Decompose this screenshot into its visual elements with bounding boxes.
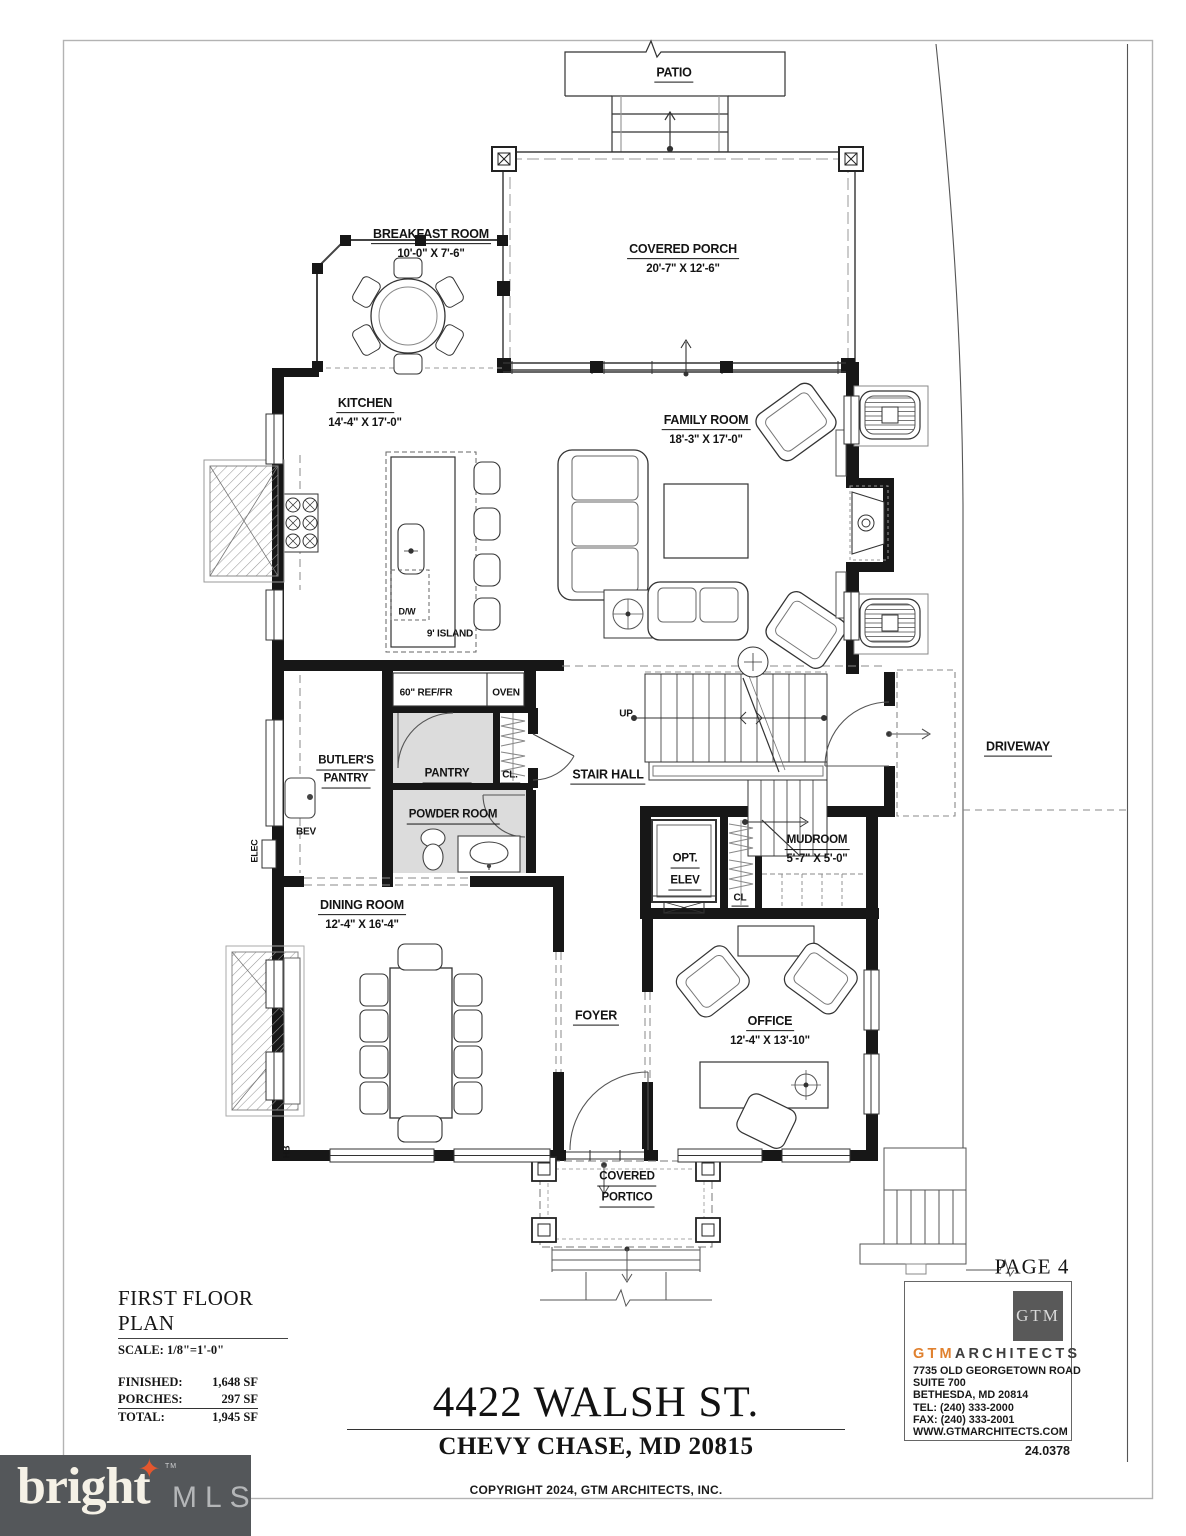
powder-room-label: POWDER ROOM	[407, 804, 500, 825]
stair-hall-label: STAIR HALL	[570, 765, 645, 786]
mls-label: MLS	[172, 1481, 258, 1515]
title-block: FIRST FLOOR PLAN SCALE: 1/8"=1'-0" FINIS…	[118, 1286, 288, 1426]
ref-label: 60" REF/FR	[400, 682, 453, 703]
portico-label2: PORTICO	[600, 1187, 655, 1208]
breakfast-room-label: BREAKFAST ROOM10'-0" X 7'-6"	[371, 224, 491, 262]
architect-block: GTM GTMARCHITECTS 7735 OLD GEORGETOWN RO…	[904, 1281, 1072, 1441]
plan-scale: SCALE: 1/8"=1'-0"	[118, 1343, 288, 1358]
star-icon: ✦	[138, 1454, 161, 1485]
areaway-hatch	[204, 460, 284, 582]
covered-porch-label: COVERED PORCH20'-7" X 12'-6"	[627, 239, 739, 277]
opt-elev-label: OPT.	[671, 848, 700, 869]
floor-plan-sheet: PATIO BREAKFAST ROOM10'-0" X 7'-6" COVER…	[0, 0, 1186, 1536]
toilet-icon	[421, 829, 445, 870]
oven-label: OVEN	[492, 682, 520, 703]
dining-room-label: DINING ROOM12'-4" X 16'-4"	[318, 895, 406, 933]
hb-label: HB	[276, 1146, 297, 1159]
plan-title: FIRST FLOOR PLAN	[118, 1286, 288, 1339]
project-number: 24.0378	[904, 1444, 1070, 1458]
side-steps	[860, 1148, 1014, 1276]
opt-elev-label2: ELEV	[668, 870, 701, 891]
vanity-sink-icon	[458, 836, 520, 872]
patio-label: PATIO	[654, 63, 693, 84]
dishwasher-label: D/W	[399, 601, 416, 622]
patio	[565, 41, 785, 152]
address-rule	[347, 1429, 845, 1430]
firm-address: 7735 OLD GEORGETOWN ROAD SUITE 700 BETHE…	[913, 1365, 1081, 1438]
fireplace-icon	[850, 486, 888, 560]
foyer-label: FOYER	[573, 1006, 619, 1027]
copyright-text: COPYRIGHT 2024, GTM ARCHITECTS, INC.	[336, 1483, 856, 1497]
table-row: PORCHES:297 SF	[118, 1391, 258, 1409]
portico-label: COVERED	[597, 1166, 656, 1187]
closet-pantry-label: CL.	[500, 764, 520, 785]
pantry-label: PANTRY	[423, 763, 472, 784]
mudroom-label: MUDROOM5'-7" X 5'-0"	[785, 829, 850, 867]
island-label: 9' ISLAND	[427, 623, 473, 644]
area-table: FINISHED:1,648 SF PORCHES:297 SF TOTAL:1…	[118, 1374, 258, 1426]
range-icon	[284, 494, 318, 552]
page-number: PAGE 4	[995, 1255, 1070, 1280]
bev-label: BEV	[296, 821, 316, 842]
city-address: CHEVY CHASE, MD 20815	[336, 1433, 856, 1461]
table-row: TOTAL:1,945 SF	[118, 1409, 258, 1426]
bright-wordmark: bright	[17, 1457, 150, 1516]
table-row: FINISHED:1,648 SF	[118, 1374, 258, 1391]
elec-label: ELEC	[244, 839, 265, 862]
kitchen-label: KITCHEN14'-4" X 17'-0"	[328, 393, 401, 431]
family-room-label: FAMILY ROOM18'-3" X 17'-0"	[662, 410, 751, 448]
gtm-logo: GTM	[1013, 1291, 1063, 1341]
driveway-label: DRIVEWAY	[984, 737, 1052, 758]
firm-wordmark: GTMARCHITECTS	[913, 1346, 1080, 1362]
up-label: UP	[619, 703, 633, 724]
closet-mudroom-label: CL	[732, 887, 749, 908]
trademark-label: TM	[165, 1463, 177, 1470]
butlers-pantry-label2: PANTRY	[322, 768, 371, 789]
address-block: 4422 WALSH ST. CHEVY CHASE, MD 20815 COP…	[336, 1378, 856, 1497]
dining-furniture	[226, 944, 482, 1142]
breakfast-table	[351, 258, 465, 374]
island-stools	[474, 462, 500, 630]
street-address: 4422 WALSH ST.	[336, 1378, 856, 1427]
office-label: OFFICE12'-4" X 13'-10"	[730, 1011, 810, 1049]
bright-mls-logo: bright ✦ TM MLS	[0, 1455, 251, 1536]
